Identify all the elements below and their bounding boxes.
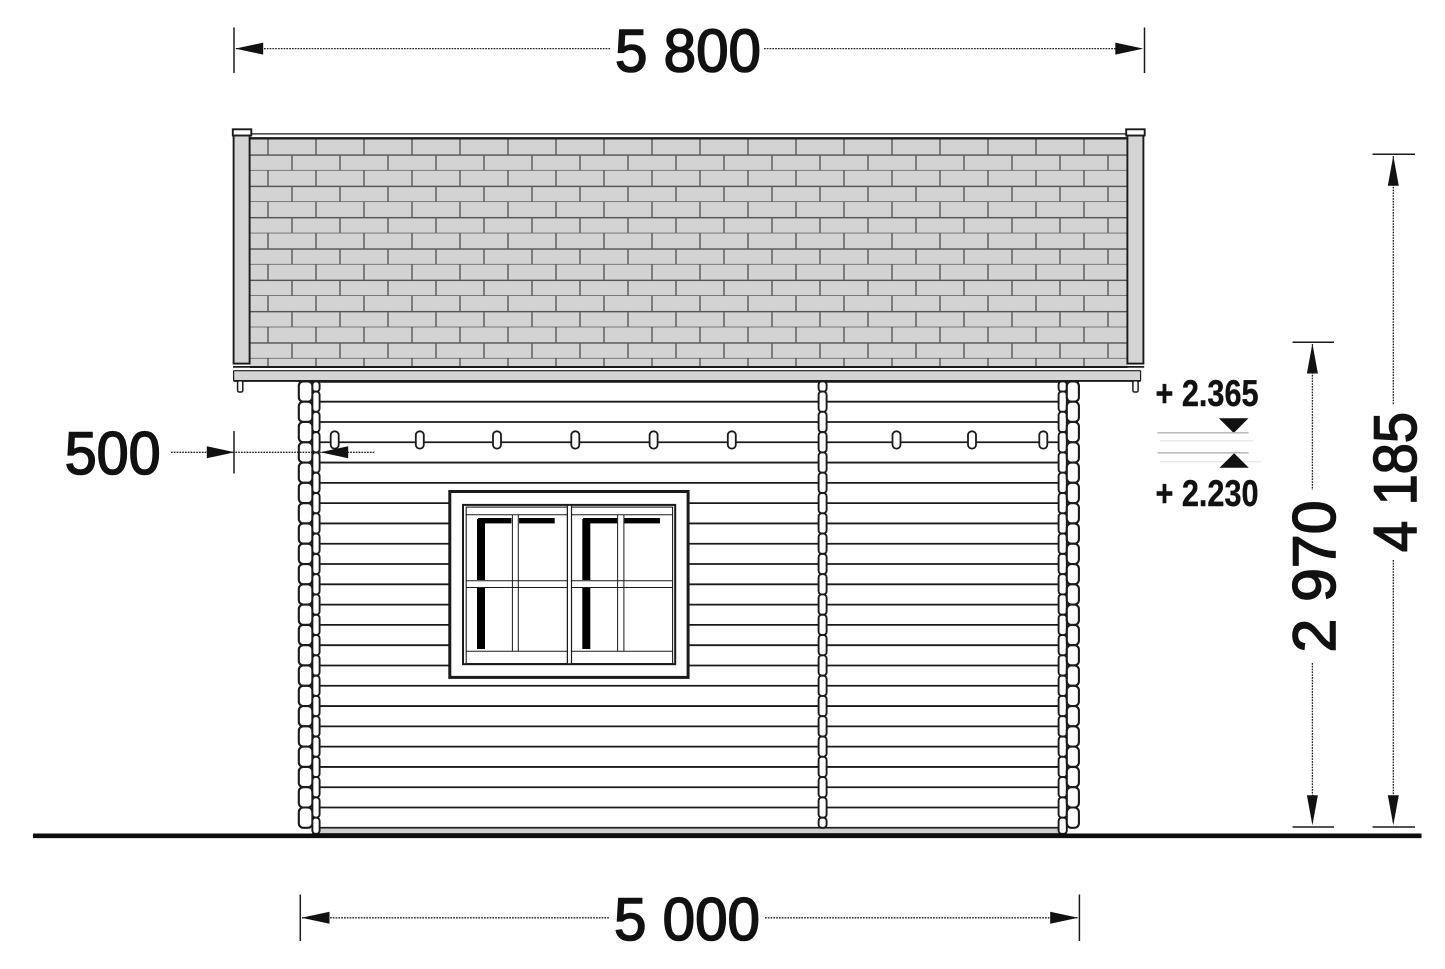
- svg-text:4 185: 4 185: [1362, 412, 1429, 552]
- svg-text:500: 500: [65, 420, 161, 487]
- svg-text:5 800: 5 800: [615, 18, 761, 85]
- svg-text:+ 2.365: + 2.365: [1156, 373, 1259, 414]
- svg-text:5 000: 5 000: [614, 886, 760, 953]
- svg-text:2 970: 2 970: [1281, 501, 1348, 653]
- svg-text:+ 2.230: + 2.230: [1156, 473, 1259, 514]
